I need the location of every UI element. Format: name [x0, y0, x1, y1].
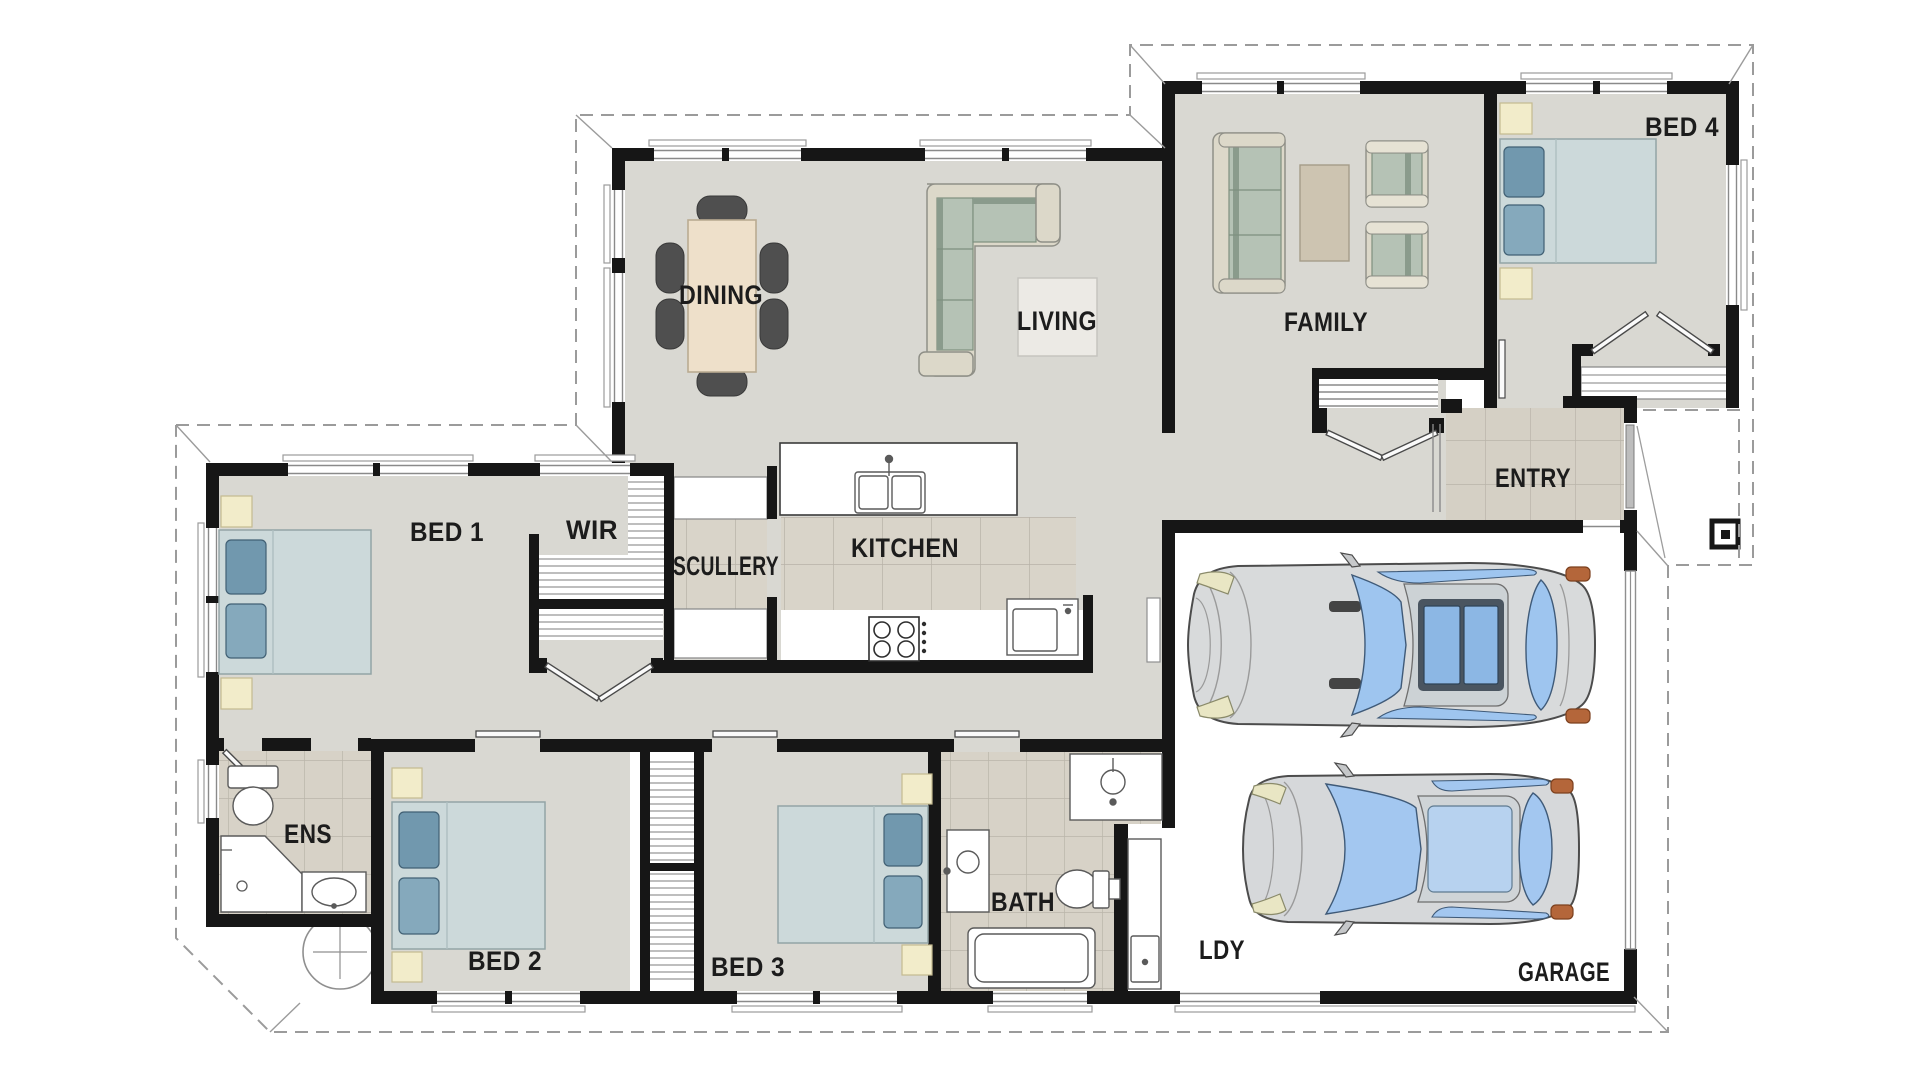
svg-text:KITCHEN: KITCHEN	[851, 533, 959, 563]
svg-text:LDY: LDY	[1199, 935, 1245, 965]
svg-text:DINING: DINING	[679, 280, 763, 310]
svg-text:BED 1: BED 1	[410, 517, 484, 547]
svg-text:BATH: BATH	[991, 887, 1055, 917]
svg-text:BED 2: BED 2	[468, 946, 542, 976]
svg-text:BED 3: BED 3	[711, 952, 785, 982]
svg-text:WIR: WIR	[566, 515, 618, 545]
svg-text:ENTRY: ENTRY	[1495, 463, 1571, 493]
svg-text:ENS: ENS	[284, 819, 332, 849]
svg-text:SCULLERY: SCULLERY	[673, 551, 779, 581]
svg-text:GARAGE: GARAGE	[1518, 957, 1610, 987]
svg-text:BED 4: BED 4	[1645, 112, 1719, 142]
svg-text:FAMILY: FAMILY	[1284, 307, 1368, 337]
svg-text:LIVING: LIVING	[1017, 306, 1097, 336]
